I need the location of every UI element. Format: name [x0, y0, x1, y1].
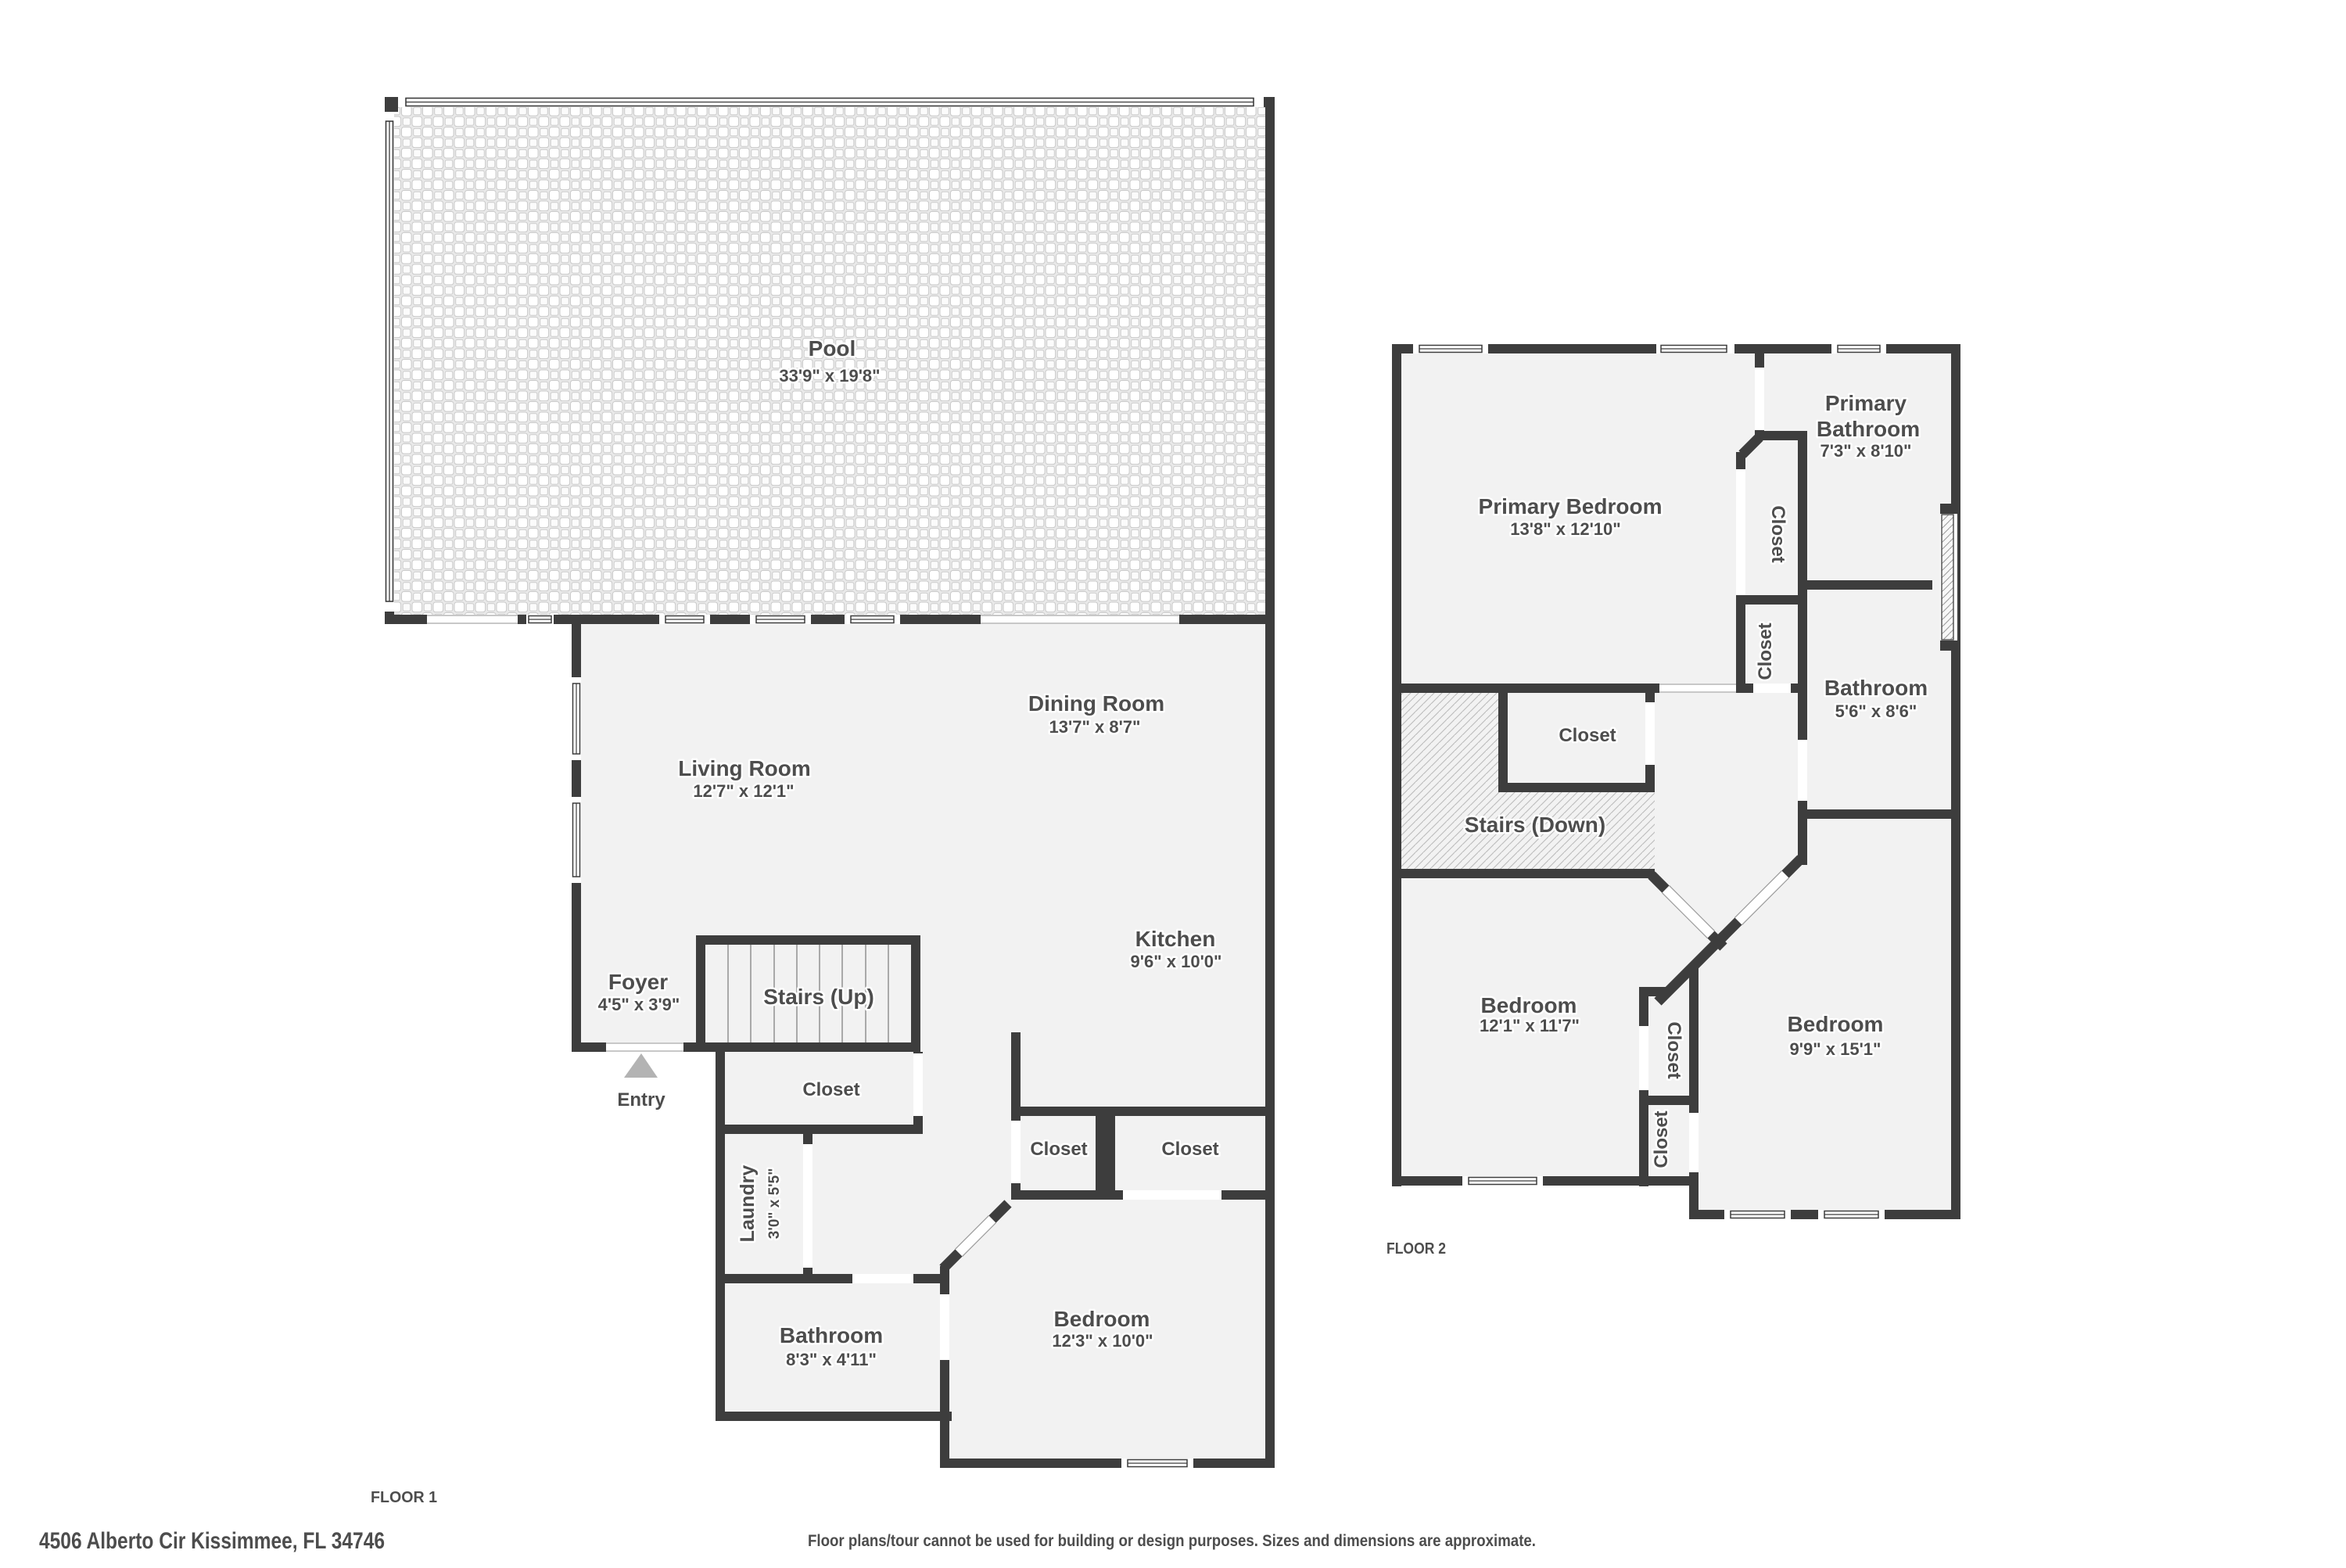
- svg-text:Laundry: Laundry: [737, 1165, 759, 1243]
- svg-text:Bathroom: Bathroom: [780, 1323, 883, 1347]
- svg-text:Dining Room: Dining Room: [1028, 691, 1164, 716]
- svg-text:12'1" x 11'7": 12'1" x 11'7": [1480, 1016, 1580, 1035]
- svg-text:Bathroom: Bathroom: [1817, 417, 1920, 441]
- svg-text:12'7" x 12'1": 12'7" x 12'1": [693, 781, 794, 801]
- svg-text:Stairs (Up): Stairs (Up): [763, 985, 874, 1009]
- svg-text:13'7" x 8'7": 13'7" x 8'7": [1049, 717, 1141, 737]
- svg-text:Stairs (Down): Stairs (Down): [1465, 813, 1605, 837]
- svg-text:Bathroom: Bathroom: [1824, 676, 1928, 700]
- svg-text:4'5" x 3'9": 4'5" x 3'9": [598, 995, 680, 1014]
- svg-text:Closet: Closet: [1755, 623, 1776, 680]
- svg-text:3'0" x 5'5": 3'0" x 5'5": [766, 1168, 783, 1239]
- svg-text:Closet: Closet: [1663, 1021, 1684, 1078]
- svg-text:Closet: Closet: [1767, 505, 1788, 562]
- svg-text:8'3" x 4'11": 8'3" x 4'11": [786, 1350, 877, 1369]
- svg-text:12'3" x 10'0": 12'3" x 10'0": [1052, 1331, 1153, 1351]
- svg-text:Entry: Entry: [617, 1089, 665, 1111]
- svg-text:9'9" x 15'1": 9'9" x 15'1": [1790, 1039, 1881, 1059]
- svg-text:Bedroom: Bedroom: [1788, 1012, 1884, 1036]
- svg-text:Living Room: Living Room: [678, 756, 811, 780]
- svg-text:Closet: Closet: [1161, 1139, 1218, 1160]
- svg-text:Pool: Pool: [809, 336, 856, 361]
- svg-text:Primary Bedroom: Primary Bedroom: [1479, 494, 1663, 518]
- svg-text:FLOOR 1: FLOOR 1: [371, 1489, 437, 1506]
- svg-text:Closet: Closet: [802, 1079, 859, 1100]
- svg-text:Closet: Closet: [1651, 1111, 1672, 1168]
- svg-text:Closet: Closet: [1030, 1139, 1087, 1160]
- svg-text:9'6" x 10'0": 9'6" x 10'0": [1131, 952, 1222, 971]
- svg-text:Kitchen: Kitchen: [1135, 927, 1216, 951]
- svg-text:Bedroom: Bedroom: [1054, 1307, 1150, 1331]
- svg-text:Floor plans/tour cannot be use: Floor plans/tour cannot be used for buil…: [808, 1532, 1536, 1550]
- svg-text:Primary: Primary: [1825, 391, 1907, 415]
- svg-text:5'6" x 8'6": 5'6" x 8'6": [1835, 701, 1917, 721]
- svg-text:Foyer: Foyer: [608, 970, 668, 994]
- svg-text:13'8" x 12'10": 13'8" x 12'10": [1510, 519, 1620, 539]
- svg-text:Bedroom: Bedroom: [1481, 993, 1577, 1017]
- svg-text:Closet: Closet: [1559, 725, 1616, 746]
- svg-text:FLOOR 2: FLOOR 2: [1386, 1240, 1446, 1258]
- svg-text:7'3" x 8'10": 7'3" x 8'10": [1820, 441, 1912, 461]
- svg-text:4506 Alberto Cir Kissimmee, FL: 4506 Alberto Cir Kissimmee, FL 34746: [39, 1528, 385, 1554]
- svg-text:33'9" x 19'8": 33'9" x 19'8": [779, 366, 880, 386]
